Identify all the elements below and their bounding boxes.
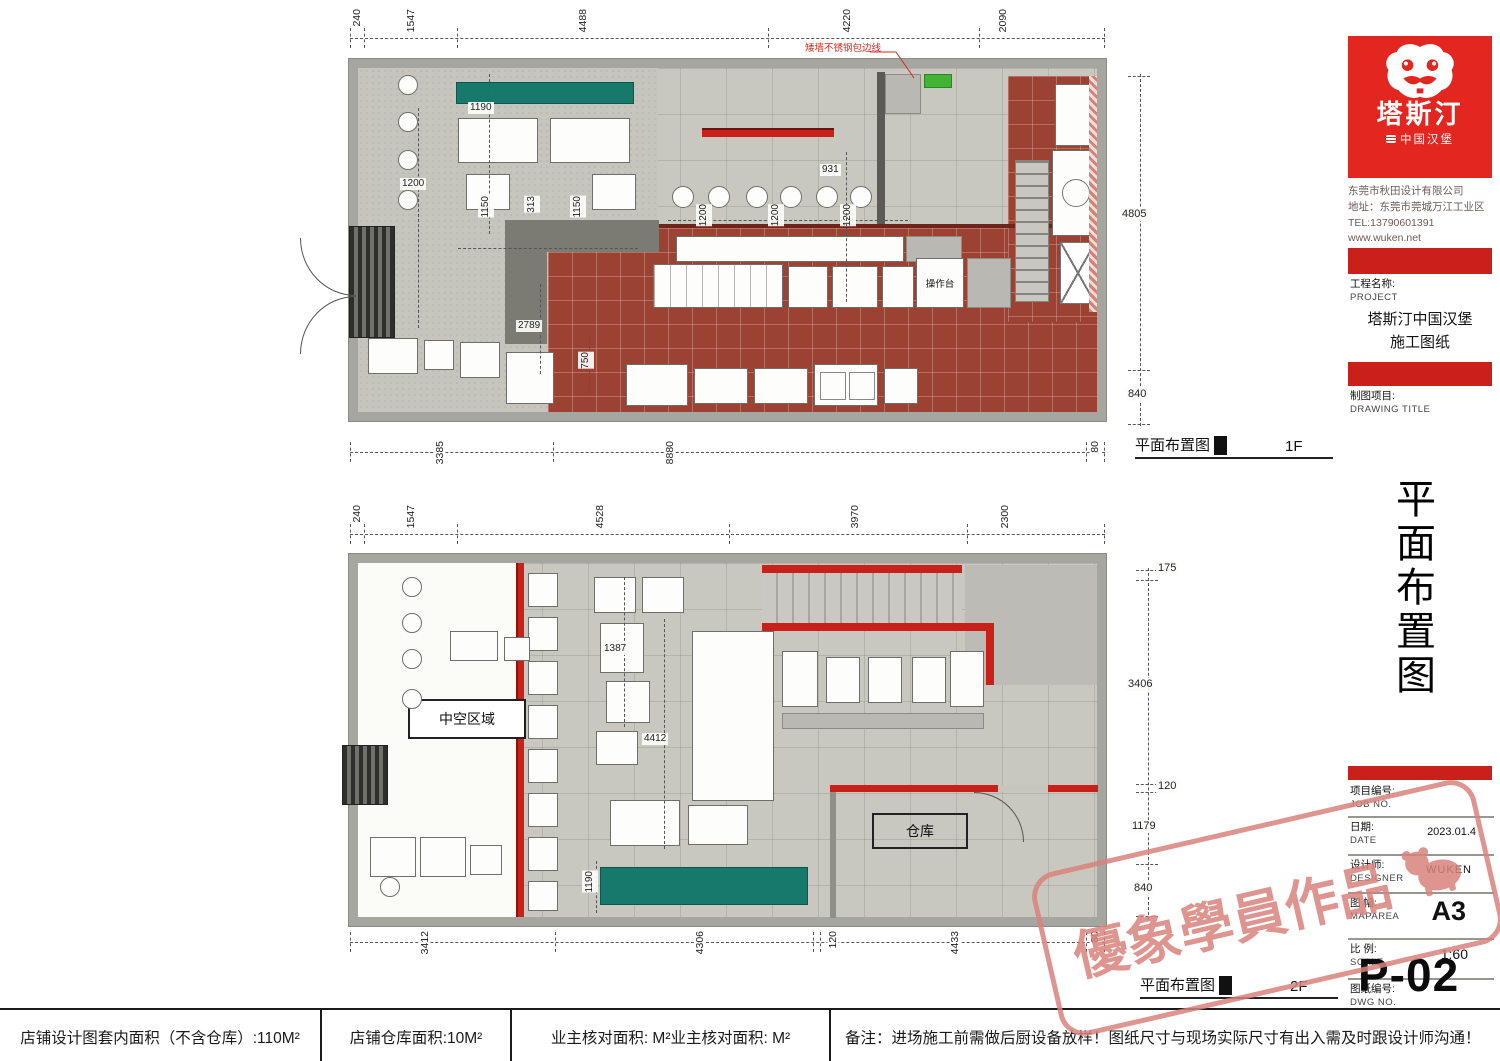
dim-1200: 1200 [768, 204, 784, 226]
bench-sofa [782, 713, 984, 729]
footer-cell-warehouse: 店铺仓库面积:10M² [322, 1010, 512, 1061]
caption-text: 平面布置图 [1135, 434, 1210, 455]
table [420, 837, 466, 877]
table [504, 637, 530, 661]
stool [402, 577, 422, 597]
dim-1200: 1200 [696, 204, 712, 226]
stool [402, 613, 422, 633]
dim-750: 750 [578, 352, 594, 369]
table [826, 657, 860, 703]
bench-red [702, 128, 834, 137]
caption-text: 平面布置图 [1140, 974, 1215, 995]
dim-1190: 1190 [582, 871, 598, 893]
dim: 1179 [1130, 820, 1158, 833]
divider-red-bar [1348, 362, 1492, 386]
void-railing-red [516, 563, 524, 917]
drawing-sheet: 操作台 1190 1200 1150 [0, 0, 1500, 1061]
dim: 2300 [1000, 504, 1011, 529]
dim-row-bottom-1f: 3385 8880 80 [350, 438, 1105, 484]
footer-cell-owner-check: 业主核对面积: M²业主核对面积: M² [512, 1010, 831, 1061]
table [594, 577, 636, 613]
dim: 1547 [406, 8, 417, 33]
company-name: 东莞市秋田设计有限公司 [1348, 184, 1498, 200]
floor-plan-2f: 仓库 中空区域 [349, 554, 1106, 926]
dim: 4488 [578, 8, 589, 33]
project-name: 塔斯汀中国汉堡 施工图纸 [1348, 308, 1492, 355]
kitchen-equipment [882, 266, 914, 308]
plan-caption-1f: 平面布置图 1F [1135, 434, 1333, 459]
sink [814, 364, 878, 406]
dim: 4306 [695, 930, 706, 955]
stool [398, 112, 418, 132]
display-case [653, 264, 783, 308]
dim: 8880 [665, 440, 676, 465]
dim: 3412 [420, 930, 431, 955]
partition-wall [877, 72, 885, 224]
dim: 3406 [1126, 678, 1154, 691]
footer-notes-bar: 店铺设计图套内面积（不含仓库）:110M² 店铺仓库面积:10M² 业主核对面积… [0, 1008, 1500, 1061]
work-table [694, 368, 748, 404]
stool [380, 877, 400, 897]
dim-col-right-1f: 4805 840 [1112, 68, 1192, 430]
worktop-label: 操作台 [926, 276, 955, 290]
table [370, 837, 416, 877]
table [782, 651, 818, 707]
communal-table [692, 631, 774, 801]
table [550, 118, 630, 163]
table [596, 731, 638, 765]
dim-4412: 4412 [642, 733, 668, 745]
warehouse-label: 仓库 [906, 821, 934, 841]
company-info: 东莞市秋田设计有限公司 地址：东莞市莞城万江工业区 TEL:1379060139… [1348, 184, 1498, 247]
stool [398, 75, 418, 95]
stair-rail-red [986, 623, 994, 685]
bar-stool [672, 186, 694, 208]
door-opening [998, 785, 1048, 792]
dim: 240 [352, 8, 363, 28]
door-swing-arc [300, 238, 356, 296]
dim-row-top-2f: 240 1547 4528 3970 2300 [350, 502, 1105, 552]
bench-seat [528, 793, 558, 827]
dim: 3385 [435, 440, 446, 465]
table [470, 845, 502, 875]
burger-icon [1386, 135, 1396, 143]
dim-931: 931 [820, 164, 841, 176]
table [460, 342, 500, 378]
stair-rail-red [762, 623, 994, 631]
stair-void-edge [342, 745, 388, 805]
dim-row-bottom-2f: 3412 4306 120 4433 80 [350, 926, 1105, 976]
table [610, 800, 680, 846]
divider-red-bar [1348, 248, 1492, 274]
work-table [754, 368, 808, 404]
service-counter [676, 236, 904, 262]
dim: 4528 [595, 504, 606, 529]
bench-seat-teal [456, 82, 634, 104]
dim-row-top-1f: 240 1547 4488 4220 2090 [350, 6, 1105, 56]
brand-name: 塔斯汀 [1376, 100, 1463, 129]
bar-stool [816, 186, 838, 208]
equipment-green [924, 74, 952, 88]
dim-col-right-2f: 175 3406 120 1179 840 [1112, 558, 1202, 930]
company-tel: TEL:13790601391 [1348, 216, 1498, 232]
warehouse-wall [830, 792, 836, 918]
warehouse-label-box: 仓库 [872, 813, 968, 849]
dimension-line [418, 108, 419, 328]
table [912, 657, 946, 703]
field-designer: 设计师: DESIGNER WUKEN [1348, 856, 1494, 894]
dim-1387: 1387 [602, 643, 628, 655]
kitchen-equipment [626, 364, 688, 406]
table [950, 651, 984, 707]
bench-seat [528, 661, 558, 695]
dimension-line [458, 248, 638, 249]
dim-1150: 1150 [570, 196, 586, 218]
floor-label: 1F [1285, 438, 1303, 455]
table [606, 681, 650, 723]
floor-label: 2F [1290, 978, 1308, 995]
bench-seat [528, 617, 558, 651]
stool [402, 689, 422, 709]
bench-seat [528, 837, 558, 871]
warehouse-wall-red [830, 785, 1098, 792]
cooktop [832, 266, 878, 308]
divider-red-bar [1348, 766, 1492, 780]
dim: 120 [1156, 780, 1178, 793]
caption-square-icon [1214, 436, 1227, 455]
project-label: 工程名称: PROJECT [1350, 278, 1398, 304]
stair-rail-red [762, 565, 962, 573]
chair-group [592, 174, 636, 210]
staircase [762, 565, 962, 629]
dim-1200: 1200 [840, 204, 856, 226]
table [368, 338, 418, 374]
field-date: 日期: DATE 2023.01.4 [1348, 818, 1494, 856]
footer-cell-area: 店铺设计图套内面积（不含仓库）:110M² [0, 1010, 322, 1061]
dim: 4433 [950, 930, 961, 955]
dim: 175 [1156, 562, 1178, 575]
dim-2789: 2789 [516, 320, 542, 332]
table [868, 657, 902, 703]
table [642, 577, 684, 613]
bench-seat [528, 705, 558, 739]
stool [402, 649, 422, 669]
bench-seat [528, 881, 558, 911]
dimension-line [846, 152, 847, 302]
cashier-counter [506, 352, 554, 404]
wall-hatch [1089, 76, 1097, 312]
table [688, 805, 748, 845]
kitchen-equipment [788, 266, 828, 308]
dim: 1547 [406, 504, 417, 529]
bar-stool [746, 186, 768, 208]
company-address: 地址：东莞市莞城万江工业区 [1348, 200, 1498, 216]
footer-cell-remark: 备注：进场施工前需做后厨设备放样！图纸尺寸与现场实际尺寸有出入需及时跟设计师沟通… [831, 1010, 1500, 1061]
bench-seat [528, 573, 558, 607]
dim: 240 [352, 504, 363, 524]
field-job-no: 项目编号: JOB NO. [1348, 782, 1494, 818]
dim: 4220 [842, 8, 853, 33]
plan-caption-2f: 平面布置图 2F [1140, 974, 1338, 999]
drawing-title-label: 制图项目: DRAWING TITLE [1350, 390, 1430, 416]
table [424, 340, 454, 370]
dim-1200: 1200 [400, 178, 426, 190]
dim: 80 [1090, 440, 1101, 454]
sheet-number: P-02 [1358, 948, 1459, 1002]
void-label-box: 中空区域 [408, 699, 526, 739]
dim: 2090 [998, 8, 1009, 33]
lion-mask-icon [1377, 42, 1463, 100]
caption-square-icon [1219, 976, 1232, 995]
dim-1150: 1150 [478, 196, 494, 218]
cabinet [967, 258, 1011, 308]
dim: 840 [1132, 882, 1154, 895]
kitchen-equipment [884, 368, 918, 404]
dim-1190: 1190 [468, 102, 494, 114]
drawing-title-vertical: 平面布置图 [1392, 478, 1432, 698]
brand-subtitle: 中国汉堡 [1386, 131, 1454, 147]
void-label: 中空区域 [439, 709, 495, 729]
dim-313: 313 [524, 196, 540, 213]
shelf-rack [1015, 160, 1049, 302]
table [458, 118, 538, 163]
table [450, 631, 498, 661]
worktop: 操作台 [916, 258, 964, 308]
bench-seat [528, 749, 558, 783]
dim: 4805 [1120, 208, 1148, 221]
floor-plan-1f: 操作台 1190 1200 1150 [349, 59, 1106, 421]
dim: 80 [1090, 930, 1101, 944]
stool [398, 150, 418, 170]
bench-seat-teal [600, 867, 808, 905]
stool [398, 190, 418, 210]
dim: 840 [1126, 388, 1148, 401]
field-map-area: 图 幅: MAPAREA A3 [1348, 894, 1494, 940]
brand-logo: 塔斯汀 中国汉堡 [1348, 36, 1492, 178]
dim: 3970 [850, 504, 861, 529]
door-swing-arc [300, 296, 356, 354]
dim: 120 [828, 930, 839, 950]
company-website[interactable]: www.wuken.net [1348, 231, 1498, 247]
